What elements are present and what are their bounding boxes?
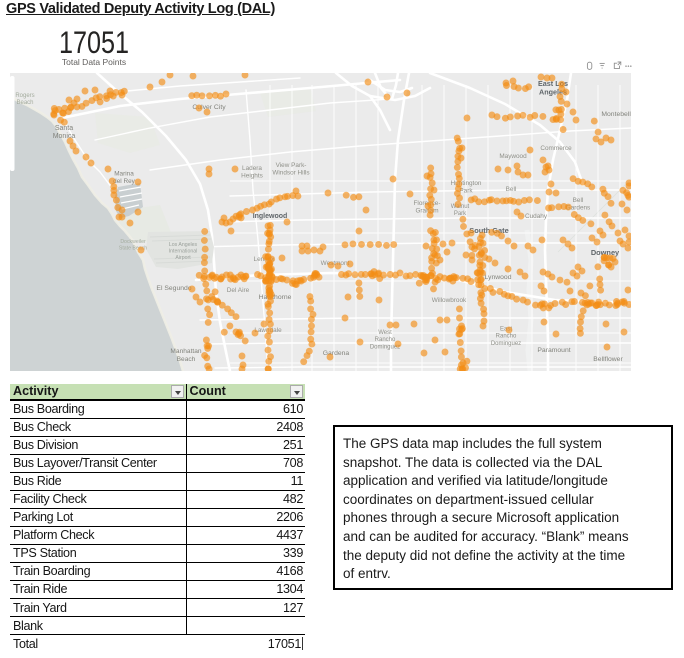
svg-text:Rogers: Rogers (15, 93, 34, 99)
svg-text:Windsor Hills: Windsor Hills (272, 170, 309, 177)
svg-text:Montebello: Montebello (601, 111, 631, 118)
svg-text:Commerce: Commerce (540, 145, 572, 152)
svg-text:El Segundo: El Segundo (156, 285, 191, 292)
svg-text:View Park-: View Park- (276, 162, 307, 169)
svg-text:Dominguez: Dominguez (491, 341, 521, 347)
svg-text:Del Aire: Del Aire (227, 287, 250, 294)
svg-text:Inglewood: Inglewood (253, 213, 288, 220)
svg-text:Ladera: Ladera (242, 165, 262, 172)
svg-text:Santa: Santa (55, 125, 73, 132)
svg-text:Park: Park (454, 211, 467, 217)
svg-text:Rancho: Rancho (496, 334, 517, 340)
svg-text:Bellflower: Bellflower (593, 356, 623, 363)
svg-text:Huntington: Huntington (451, 180, 482, 187)
svg-text:Los Angeles: Los Angeles (169, 242, 198, 248)
svg-text:Heights: Heights (241, 173, 263, 180)
svg-text:del Rey: del Rey (113, 178, 135, 185)
svg-text:International: International (169, 248, 198, 254)
svg-text:West: West (378, 330, 392, 336)
svg-text:Dockweiler: Dockweiler (120, 239, 146, 245)
svg-text:Bell: Bell (506, 186, 517, 193)
svg-text:Maywood: Maywood (499, 153, 527, 160)
svg-text:Bell: Bell (573, 197, 584, 204)
svg-text:Willowbrook: Willowbrook (432, 297, 467, 304)
svg-text:Cudahy: Cudahy (525, 213, 548, 220)
svg-text:Marina: Marina (114, 171, 134, 178)
svg-text:Beach: Beach (16, 100, 33, 106)
svg-text:Rancho: Rancho (375, 337, 396, 343)
svg-text:Manhattan: Manhattan (170, 348, 201, 355)
svg-text:Hawthorne: Hawthorne (259, 294, 292, 301)
svg-text:Beach: Beach (177, 356, 196, 363)
svg-text:Paramount: Paramount (537, 347, 570, 354)
svg-text:Airport: Airport (175, 255, 191, 261)
svg-text:Lynwood: Lynwood (485, 274, 512, 281)
